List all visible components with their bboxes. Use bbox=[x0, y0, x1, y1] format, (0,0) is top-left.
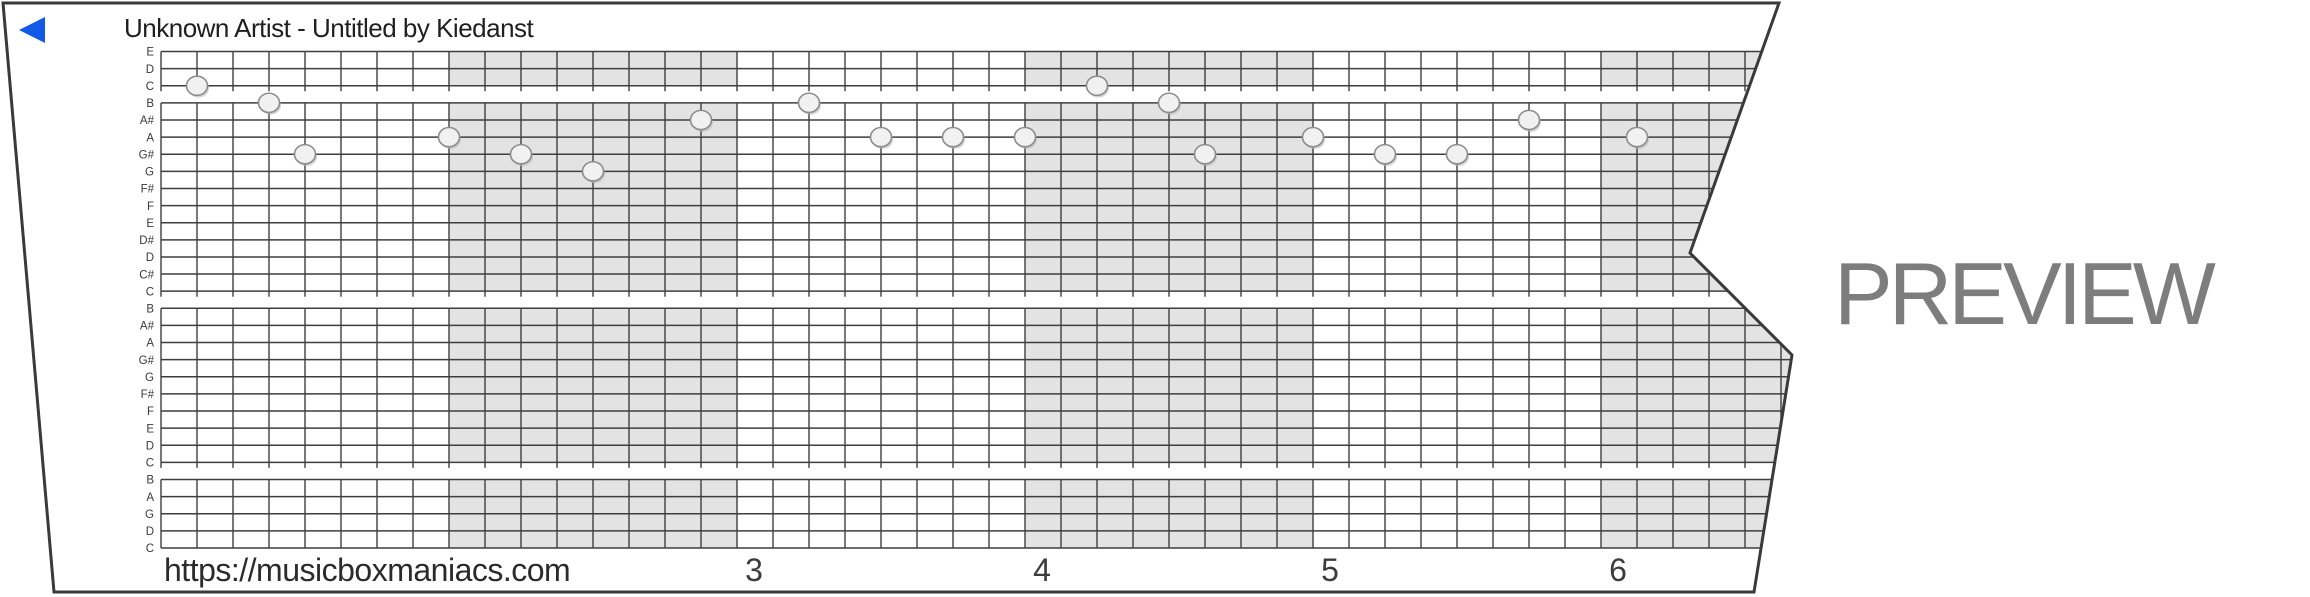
note-label: G bbox=[145, 509, 154, 521]
note-label: D bbox=[146, 526, 154, 538]
note-label: G# bbox=[139, 355, 155, 367]
note-label: F# bbox=[141, 184, 155, 196]
note-dot-b bbox=[799, 93, 820, 112]
note-label: G bbox=[145, 167, 154, 179]
note-label: F bbox=[147, 201, 154, 213]
note-dot-gs bbox=[511, 145, 532, 164]
note-dot-gs bbox=[295, 145, 316, 164]
note-dot-gs bbox=[1195, 145, 1216, 164]
note-dot-as bbox=[1519, 110, 1540, 129]
note-label: A# bbox=[140, 321, 155, 333]
note-label: E bbox=[146, 423, 154, 435]
note-label: D bbox=[146, 252, 154, 264]
measure-number-4: 4 bbox=[1033, 552, 1051, 588]
note-label: C bbox=[146, 81, 154, 93]
note-label: A bbox=[146, 492, 154, 504]
note-dot-c bbox=[187, 76, 208, 95]
note-label: F bbox=[147, 406, 154, 418]
paper-strip bbox=[3, 3, 1792, 592]
measure-number-6: 6 bbox=[1609, 552, 1627, 588]
note-label: A# bbox=[140, 115, 155, 127]
note-label: C bbox=[146, 543, 154, 555]
note-label: C bbox=[146, 458, 154, 470]
note-dot-a bbox=[1015, 128, 1036, 147]
note-label: E bbox=[146, 47, 154, 59]
note-label: A bbox=[146, 338, 154, 350]
note-dot-a bbox=[943, 128, 964, 147]
melody-title: Unknown Artist - Untitled by Kiedanst bbox=[124, 13, 535, 43]
note-dot-gs bbox=[1375, 145, 1396, 164]
note-dot-g bbox=[583, 162, 604, 181]
note-label: C# bbox=[139, 269, 154, 281]
note-dot-c bbox=[1087, 76, 1108, 95]
note-dot-a bbox=[439, 128, 460, 147]
note-label: B bbox=[146, 304, 154, 316]
note-label: G# bbox=[139, 149, 155, 161]
note-label: E bbox=[146, 218, 154, 230]
note-dot-b bbox=[259, 93, 280, 112]
site-url[interactable]: https://musicboxmaniacs.com bbox=[164, 552, 570, 588]
note-dot-gs bbox=[1447, 145, 1468, 164]
note-label: D# bbox=[139, 235, 154, 247]
measure-number-5: 5 bbox=[1321, 552, 1339, 588]
note-label: C bbox=[146, 286, 154, 298]
note-dot-a bbox=[1303, 128, 1324, 147]
note-label: A bbox=[146, 132, 154, 144]
note-label: D bbox=[146, 64, 154, 76]
note-label: D bbox=[146, 440, 154, 452]
note-label: G bbox=[145, 372, 154, 384]
note-label: F# bbox=[141, 389, 155, 401]
music-box-preview-page: EDCBA#AG#GF#FED#DC#CBA#AG#GF#FEDCBAGDC 3… bbox=[0, 0, 2310, 597]
measure-number-3: 3 bbox=[745, 552, 763, 588]
note-label: B bbox=[146, 475, 154, 487]
note-dot-a bbox=[1627, 128, 1648, 147]
note-label: B bbox=[146, 98, 154, 110]
note-dot-b bbox=[1159, 93, 1180, 112]
preview-watermark: PREVIEW bbox=[1834, 250, 2212, 338]
note-dot-as bbox=[691, 110, 712, 129]
note-dot-a bbox=[871, 128, 892, 147]
